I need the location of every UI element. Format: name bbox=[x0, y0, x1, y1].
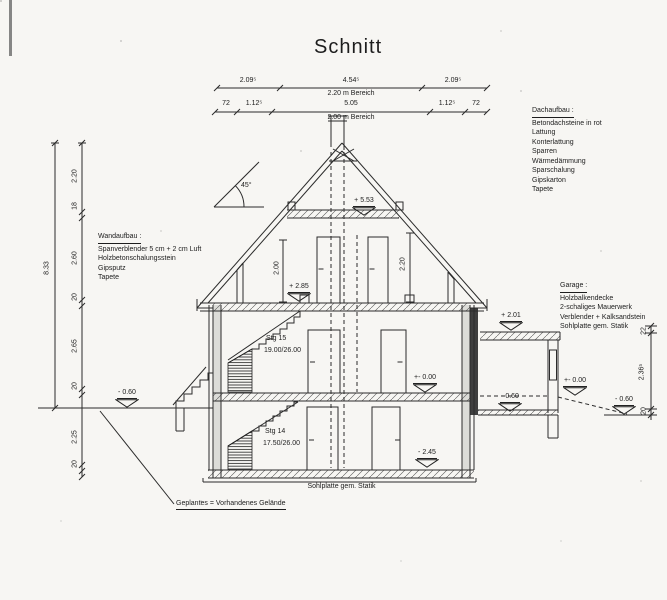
level-marker-basement: - 2.45 bbox=[407, 449, 447, 468]
level-marker-terrain-left: - 0.60 bbox=[107, 389, 147, 408]
note-line: Konterlattung bbox=[532, 138, 602, 148]
note-line: Lattung bbox=[532, 128, 602, 138]
dim-top2-e: 72 bbox=[466, 100, 486, 108]
level-marker-terrain-right: - 0.60 bbox=[604, 396, 644, 415]
note-line: Tapete bbox=[98, 273, 201, 283]
level-triangle-icon bbox=[115, 399, 139, 408]
note-dachaufbau-heading: Dachaufbau : bbox=[532, 106, 574, 118]
note-line: Sohlplatte gem. Statik bbox=[560, 322, 645, 332]
level-marker-collar: + 5.53 bbox=[344, 197, 384, 216]
note-wandaufbau: Wandaufbau : Spanverblender 5 cm + 2 cm … bbox=[98, 232, 201, 283]
note-line: Spanverblender 5 cm + 2 cm Luft bbox=[98, 245, 201, 255]
level-marker-garage-floor: - 0.60 bbox=[490, 393, 530, 412]
note-line: Gipskarton bbox=[532, 176, 602, 186]
level-triangle-icon bbox=[352, 207, 376, 216]
level-marker-garage-roof: + 2.01 bbox=[491, 312, 531, 331]
dim-left-seg6: 2.25 bbox=[72, 430, 79, 444]
dim-top1-mid: 4.54⁵ bbox=[331, 77, 371, 85]
level-marker-ground-floor: +- 0.00 bbox=[405, 374, 445, 393]
drawing-title: Schnitt bbox=[314, 36, 382, 58]
dim-left-seg4: 2.65 bbox=[72, 339, 79, 353]
note-line: Verblender + Kalksandstein bbox=[560, 313, 645, 323]
note-line: Sparschalung bbox=[532, 166, 602, 176]
note-line: Gipsputz bbox=[98, 264, 201, 274]
dim-top2-b: 1.12⁵ bbox=[234, 100, 274, 108]
dim-top2-a: 72 bbox=[216, 100, 236, 108]
note-garage: Garage : Holzbalkendecke 2-schaliges Mau… bbox=[560, 281, 645, 332]
dim-top2-d: 1.12⁵ bbox=[427, 100, 467, 108]
dim-attic-right: 2.20 bbox=[400, 257, 407, 271]
note-line: Holzbetonschalungsstein bbox=[98, 254, 201, 264]
level-triangle-icon bbox=[287, 293, 311, 302]
stair-upper-ratio: 19.00/26.00 bbox=[264, 347, 301, 355]
scanned-section-drawing: Schnitt 2.09⁵ 4.54⁵ 2.09⁵ 2.20 m Bereich… bbox=[0, 0, 667, 600]
note-line: Betondachsteine in rot bbox=[532, 119, 602, 129]
level-marker-garage-ground: +- 0.00 bbox=[555, 377, 595, 396]
note-wandaufbau-heading: Wandaufbau : bbox=[98, 232, 141, 244]
level-triangle-icon bbox=[415, 459, 439, 468]
stair-upper-name: Stg 15 bbox=[266, 335, 286, 343]
roof-angle-label: 45° bbox=[241, 182, 252, 190]
note-line: Sparren bbox=[532, 147, 602, 157]
note-line: Holzbalkendecke bbox=[560, 294, 645, 304]
dim-top1-note: 2.20 m Bereich bbox=[309, 90, 393, 98]
dim-left-total: 8.33 bbox=[44, 261, 51, 275]
stair-lower-name: Stg 14 bbox=[265, 428, 285, 436]
dim-top2-note: 2.00 m Bereich bbox=[309, 114, 393, 122]
dim-left-seg2: 2.60 bbox=[72, 251, 79, 265]
legend-label: Geplantes = Vorhandenes Gelände bbox=[176, 500, 286, 510]
note-line: Wärmedämmung bbox=[532, 157, 602, 167]
note-line: Tapete bbox=[532, 185, 602, 195]
scan-smudge bbox=[9, 0, 12, 56]
note-dachaufbau: Dachaufbau : Betondachsteine in rot Latt… bbox=[532, 106, 602, 195]
level-marker-attic: + 2.85 bbox=[279, 283, 319, 302]
scan-noise bbox=[0, 0, 2, 2]
dim-left-seg1: 18 bbox=[72, 202, 79, 210]
dim-top2-c: 5.05 bbox=[331, 100, 371, 108]
note-line: 2-schaliges Mauerwerk bbox=[560, 303, 645, 313]
dim-right-seg1: 2.36⁵ bbox=[639, 364, 646, 381]
stair-lower-ratio: 17.50/26.00 bbox=[263, 440, 300, 448]
level-triangle-icon bbox=[498, 403, 522, 412]
level-triangle-icon bbox=[612, 406, 636, 415]
dim-top1-right: 2.09⁵ bbox=[433, 77, 473, 85]
dim-top1-left: 2.09⁵ bbox=[228, 77, 268, 85]
level-triangle-icon bbox=[413, 384, 437, 393]
dim-left-seg5: 20 bbox=[72, 382, 79, 390]
dim-attic-left: 2.00 bbox=[274, 261, 281, 275]
slab-label: Sohlplatte gem. Statik bbox=[294, 483, 389, 491]
dim-left-seg7: 20 bbox=[72, 460, 79, 468]
dim-left-seg3: 20 bbox=[72, 293, 79, 301]
level-triangle-icon bbox=[563, 387, 587, 396]
note-garage-heading: Garage : bbox=[560, 281, 587, 293]
level-triangle-icon bbox=[499, 322, 523, 331]
dim-left-seg0: 2.20 bbox=[72, 169, 79, 183]
